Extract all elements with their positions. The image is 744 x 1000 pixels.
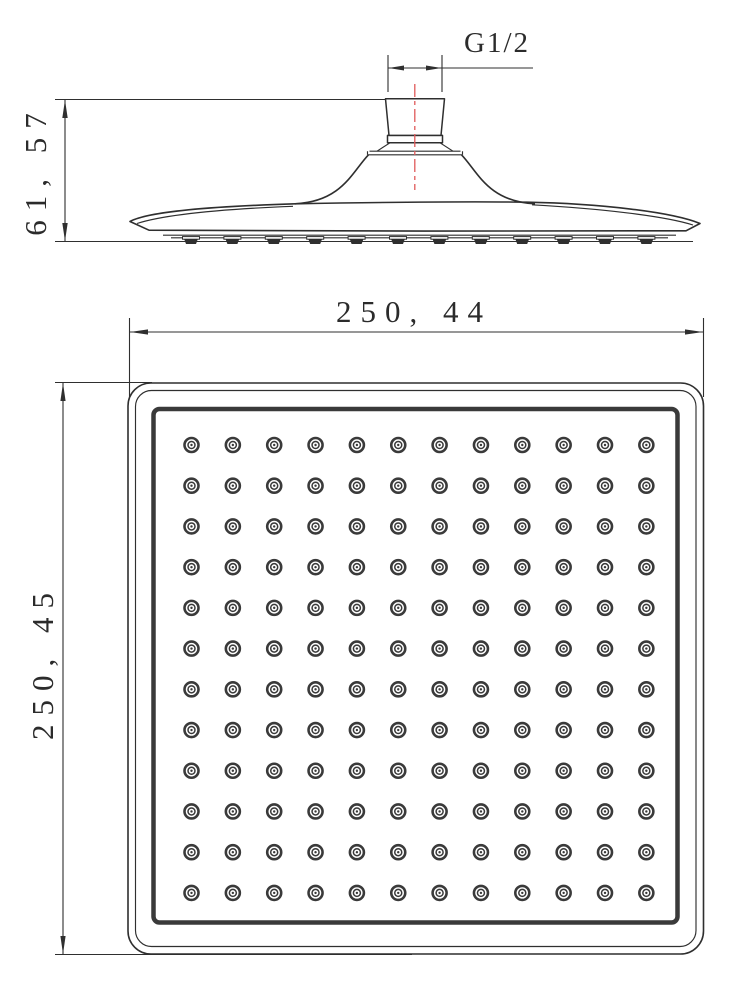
- nozzle: [474, 804, 488, 818]
- nozzle: [474, 601, 488, 615]
- nozzle: [639, 438, 653, 452]
- nozzle: [185, 723, 199, 737]
- nozzle: [226, 682, 240, 696]
- side-nozzle-tab: [514, 237, 531, 244]
- nozzle: [639, 601, 653, 615]
- nozzle: [598, 642, 612, 656]
- nozzle: [226, 886, 240, 900]
- nozzle: [226, 642, 240, 656]
- nozzle: [185, 804, 199, 818]
- nozzle: [515, 519, 529, 533]
- nozzle: [267, 682, 281, 696]
- nozzle: [474, 560, 488, 574]
- nozzle: [557, 682, 571, 696]
- arrowhead-left: [130, 329, 148, 334]
- dome-curve-left: [295, 155, 369, 204]
- side-view: 61, 57 G1/2: [18, 27, 700, 244]
- nozzle: [639, 642, 653, 656]
- nozzle: [474, 845, 488, 859]
- nozzle: [474, 723, 488, 737]
- nozzle: [309, 601, 323, 615]
- nozzle: [639, 519, 653, 533]
- nozzle: [474, 642, 488, 656]
- nozzle: [391, 519, 405, 533]
- side-nozzle-tab: [431, 237, 448, 244]
- nozzle: [557, 642, 571, 656]
- nozzle: [226, 560, 240, 574]
- nozzle: [309, 560, 323, 574]
- nozzle: [515, 804, 529, 818]
- nozzle: [391, 438, 405, 452]
- nozzle: [433, 845, 447, 859]
- nozzle: [433, 479, 447, 493]
- nozzle: [474, 479, 488, 493]
- nozzle: [350, 560, 364, 574]
- technical-drawing-canvas: 61, 57 G1/2: [0, 0, 744, 1000]
- nozzle: [309, 438, 323, 452]
- nozzle: [598, 519, 612, 533]
- nozzle: [433, 682, 447, 696]
- side-nozzle-tab: [390, 237, 407, 244]
- nozzle: [267, 519, 281, 533]
- nozzle: [598, 479, 612, 493]
- nozzle: [267, 438, 281, 452]
- arrowhead-up: [60, 383, 65, 401]
- nozzle: [598, 560, 612, 574]
- side-nozzle-tab: [348, 237, 365, 244]
- nozzle: [267, 886, 281, 900]
- nozzle: [557, 723, 571, 737]
- nozzle: [433, 723, 447, 737]
- nozzle: [185, 560, 199, 574]
- side-nozzle-tab: [183, 237, 200, 244]
- nozzle: [350, 519, 364, 533]
- nozzle: [515, 682, 529, 696]
- nozzle: [639, 682, 653, 696]
- nozzle: [639, 845, 653, 859]
- arrowhead-down: [60, 936, 65, 954]
- nozzle: [557, 886, 571, 900]
- nozzle: [185, 845, 199, 859]
- nozzle: [267, 723, 281, 737]
- nozzle: [557, 764, 571, 778]
- nozzle: [226, 479, 240, 493]
- nozzle: [185, 764, 199, 778]
- nozzle: [185, 601, 199, 615]
- nozzle: [433, 764, 447, 778]
- nozzle: [557, 601, 571, 615]
- nozzle: [433, 886, 447, 900]
- nozzle: [309, 723, 323, 737]
- nozzle: [391, 560, 405, 574]
- arrowhead-down: [62, 223, 67, 241]
- nozzle: [639, 804, 653, 818]
- nozzle: [267, 642, 281, 656]
- nozzle: [433, 642, 447, 656]
- nozzle: [598, 886, 612, 900]
- nozzle: [267, 479, 281, 493]
- nozzle: [185, 886, 199, 900]
- nozzle: [515, 479, 529, 493]
- nozzle: [515, 438, 529, 452]
- nozzle: [515, 886, 529, 900]
- nozzle: [226, 519, 240, 533]
- nozzle: [557, 845, 571, 859]
- nozzle: [391, 723, 405, 737]
- nozzle: [474, 886, 488, 900]
- nozzle: [226, 438, 240, 452]
- faceplate-outer-edge: [128, 383, 704, 954]
- nozzle: [474, 519, 488, 533]
- nozzle: [267, 845, 281, 859]
- nozzle: [267, 560, 281, 574]
- nozzle: [185, 438, 199, 452]
- nozzle: [515, 642, 529, 656]
- nozzle-grid: [185, 438, 654, 900]
- nozzle: [391, 845, 405, 859]
- nozzle: [350, 804, 364, 818]
- brim-inner-edge-left: [137, 206, 293, 223]
- nozzle: [267, 804, 281, 818]
- nozzle: [639, 560, 653, 574]
- side-nozzle-tab: [307, 237, 324, 244]
- nozzle: [309, 642, 323, 656]
- side-nozzle-tab: [638, 237, 655, 244]
- nozzle: [598, 723, 612, 737]
- thread-dimension: G1/2: [388, 27, 533, 92]
- nozzle: [433, 519, 447, 533]
- arrowhead-left: [389, 66, 405, 71]
- nozzle: [557, 519, 571, 533]
- nozzle: [557, 804, 571, 818]
- side-nozzle-tab: [555, 237, 572, 244]
- technical-drawing-page: 61, 57 G1/2: [0, 0, 744, 1000]
- nozzle: [226, 764, 240, 778]
- nozzle: [391, 764, 405, 778]
- shower-arm-connector: [377, 84, 453, 190]
- nozzle: [185, 682, 199, 696]
- side-nozzle-tab: [224, 237, 241, 244]
- nozzle: [598, 845, 612, 859]
- arrowhead-up: [62, 100, 67, 118]
- nozzle: [350, 479, 364, 493]
- nozzle: [557, 479, 571, 493]
- width-dimension-label: 250, 44: [336, 294, 492, 329]
- nozzle: [226, 601, 240, 615]
- nozzle: [391, 886, 405, 900]
- nozzle: [598, 804, 612, 818]
- nozzle: [309, 479, 323, 493]
- thread-dimension-label: G1/2: [464, 27, 530, 59]
- nozzle: [515, 560, 529, 574]
- nozzle: [433, 438, 447, 452]
- nozzle: [309, 845, 323, 859]
- nozzle: [309, 519, 323, 533]
- nozzle: [350, 642, 364, 656]
- nozzle: [350, 723, 364, 737]
- nozzle: [639, 723, 653, 737]
- nozzle: [350, 886, 364, 900]
- nozzle: [391, 804, 405, 818]
- nozzle: [350, 845, 364, 859]
- nozzle: [185, 519, 199, 533]
- plan-height-dimension-label: 250, 45: [25, 584, 60, 740]
- nozzle: [350, 601, 364, 615]
- nozzle: [267, 601, 281, 615]
- nozzle: [639, 886, 653, 900]
- nozzle: [350, 438, 364, 452]
- nozzle: [557, 560, 571, 574]
- nozzle: [226, 723, 240, 737]
- nozzle: [515, 764, 529, 778]
- nozzle: [515, 845, 529, 859]
- nozzle: [598, 682, 612, 696]
- nozzle: [515, 723, 529, 737]
- side-nozzle-tab: [472, 237, 489, 244]
- nozzle: [309, 682, 323, 696]
- nozzle: [557, 438, 571, 452]
- faceplate-inner-edge: [136, 391, 697, 947]
- dome-curve-right: [462, 155, 536, 204]
- arrowhead-right: [685, 329, 703, 334]
- nozzle: [309, 764, 323, 778]
- nozzle: [185, 479, 199, 493]
- nozzle: [391, 601, 405, 615]
- nozzle: [639, 764, 653, 778]
- nozzle: [474, 764, 488, 778]
- nozzle: [350, 682, 364, 696]
- width-dimension: 250, 44: [130, 294, 704, 397]
- nozzle: [598, 601, 612, 615]
- nozzle: [391, 682, 405, 696]
- nozzle: [226, 804, 240, 818]
- nozzle: [391, 642, 405, 656]
- plan-height-dimension: 250, 45: [25, 383, 412, 955]
- nozzle: [474, 682, 488, 696]
- nozzle: [433, 560, 447, 574]
- plan-view: 250, 44 250, 45: [25, 294, 704, 955]
- side-nozzle-tab: [265, 237, 282, 244]
- nozzle: [350, 764, 364, 778]
- nozzle: [639, 479, 653, 493]
- nozzle: [226, 845, 240, 859]
- nozzle: [598, 438, 612, 452]
- nozzle: [515, 601, 529, 615]
- arrowhead-right: [426, 66, 442, 71]
- nozzle: [309, 886, 323, 900]
- side-nozzle-tab: [597, 237, 614, 244]
- nozzle: [433, 601, 447, 615]
- nozzle: [267, 764, 281, 778]
- nozzle: [474, 438, 488, 452]
- nozzle: [391, 479, 405, 493]
- nozzle: [433, 804, 447, 818]
- shower-head-profile: [130, 202, 700, 231]
- nozzle: [598, 764, 612, 778]
- height-dimension-label: 61, 57: [18, 104, 53, 236]
- nozzle: [309, 804, 323, 818]
- nozzle: [185, 642, 199, 656]
